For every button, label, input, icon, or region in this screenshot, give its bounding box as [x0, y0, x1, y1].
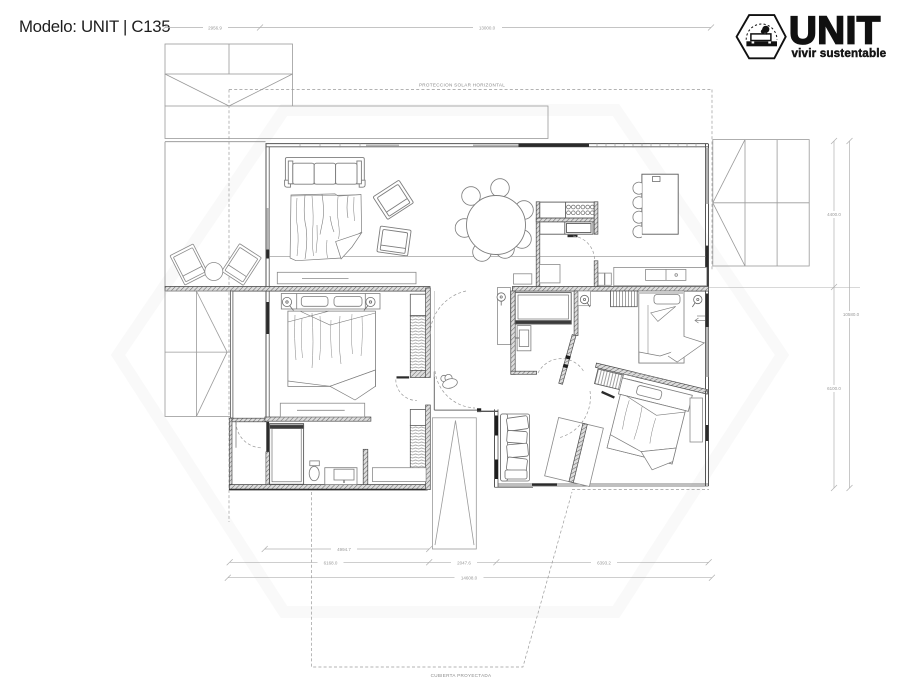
- svg-text:vivir sustentable: vivir sustentable: [792, 47, 887, 60]
- svg-text:13000.0: 13000.0: [479, 26, 496, 31]
- svg-text:10580.0: 10580.0: [843, 312, 860, 317]
- svg-text:14608.0: 14608.0: [461, 576, 478, 581]
- svg-text:4400.0: 4400.0: [827, 212, 841, 217]
- svg-text:CUBIERTA PROYECTADA: CUBIERTA PROYECTADA: [431, 673, 492, 678]
- svg-text:2047.6: 2047.6: [457, 560, 471, 565]
- svg-text:4994.7: 4994.7: [337, 547, 351, 552]
- svg-text:2956.9: 2956.9: [208, 26, 222, 31]
- svg-text:6168.0: 6168.0: [324, 560, 338, 565]
- svg-text:UNIT: UNIT: [789, 9, 881, 52]
- svg-text:PROTECCION SOLAR HORIZONTAL: PROTECCION SOLAR HORIZONTAL: [419, 83, 505, 88]
- svg-text:Modelo: UNIT | C135: Modelo: UNIT | C135: [19, 17, 170, 36]
- svg-text:6100.0: 6100.0: [827, 386, 841, 391]
- svg-text:6393.2: 6393.2: [597, 560, 611, 565]
